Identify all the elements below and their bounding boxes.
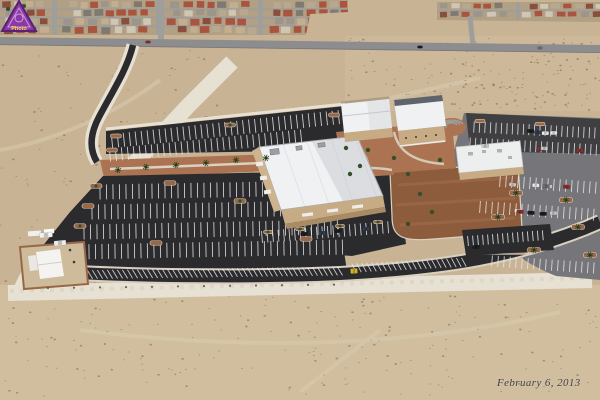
aerial-photo: Photo February 6, 2013 (0, 0, 600, 400)
north-building-west (341, 97, 393, 143)
residential-neighborhood-far (437, 2, 600, 22)
north-building-center (394, 95, 446, 147)
north-building-east (456, 141, 524, 180)
side-road (470, 16, 473, 46)
residential-neighborhood (0, 0, 351, 36)
photo-date-caption: February 6, 2013 (497, 377, 597, 389)
watermark-logo: Photo (0, 0, 38, 34)
watermark-label: Photo (11, 26, 27, 32)
trailer (28, 231, 41, 237)
aerial-photo-scene (0, 0, 600, 400)
